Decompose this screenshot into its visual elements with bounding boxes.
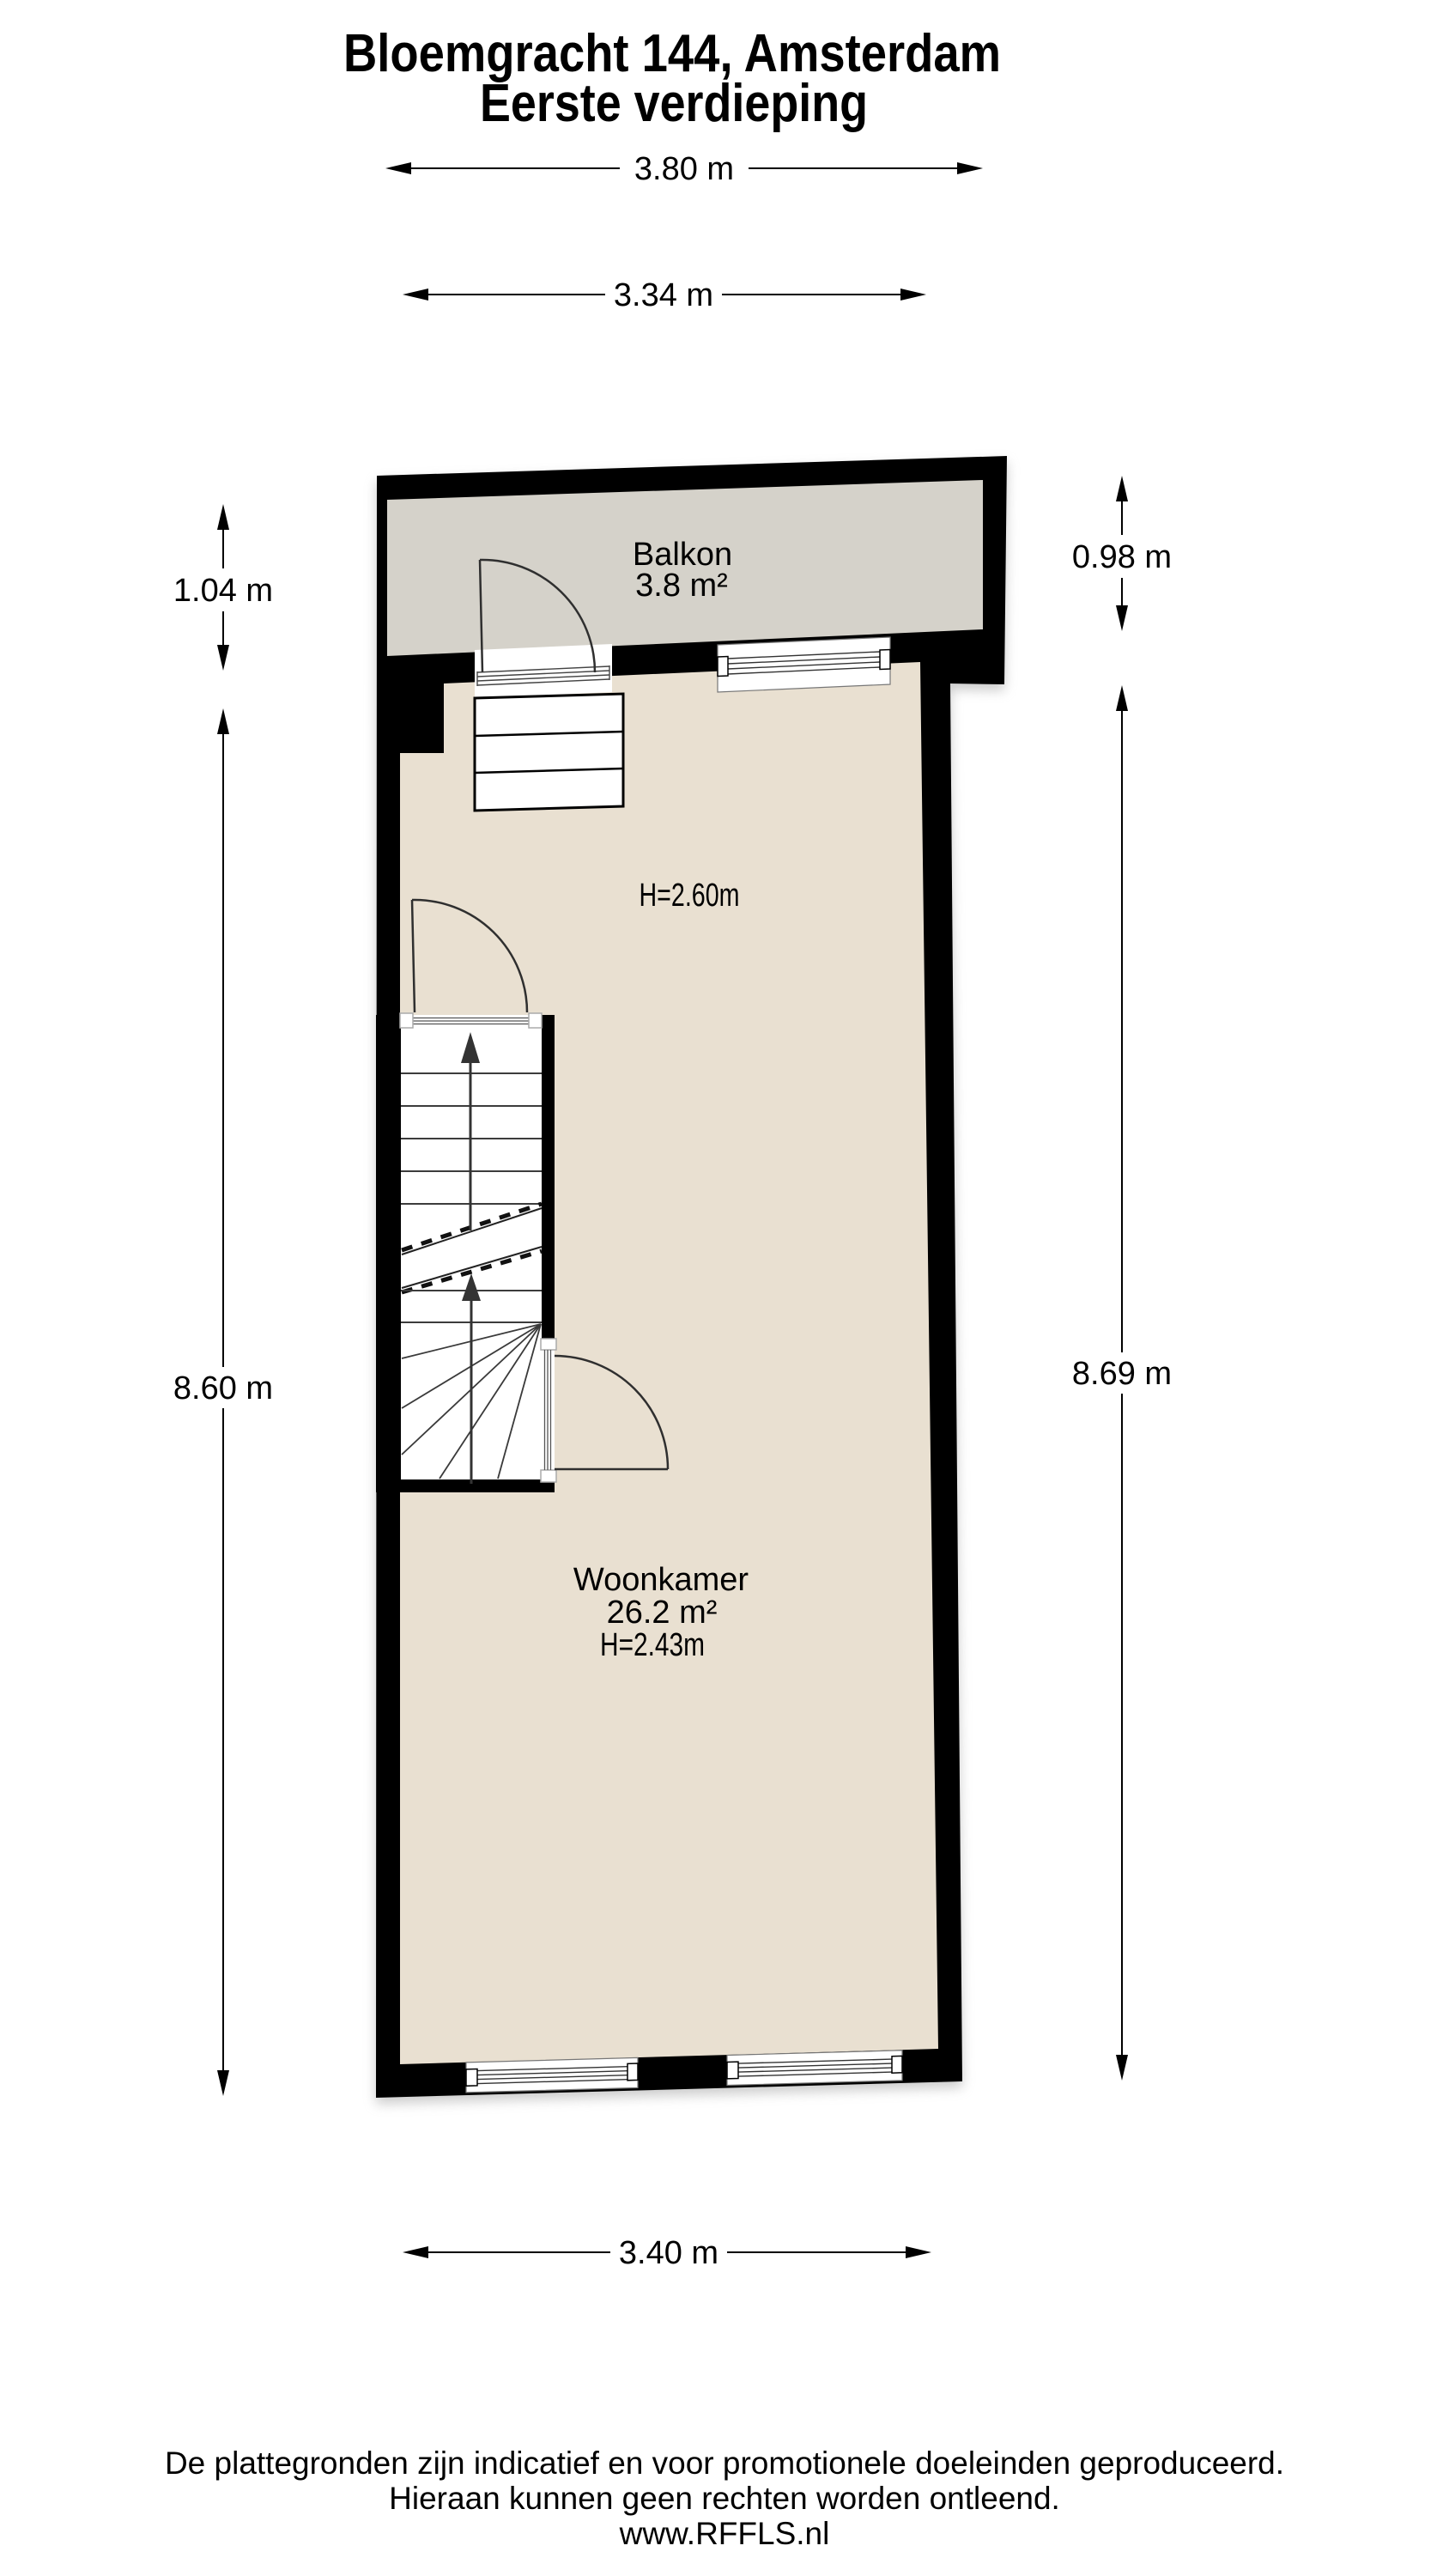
svg-text:8.69 m: 8.69 m — [1072, 1356, 1172, 1392]
svg-text:Woonkamer: Woonkamer — [573, 1562, 749, 1598]
svg-text:H=2.60m: H=2.60m — [640, 878, 740, 914]
svg-text:Eerste verdieping: Eerste verdieping — [480, 74, 868, 133]
svg-text:0.98 m: 0.98 m — [1072, 539, 1172, 575]
svg-text:H=2.43m: H=2.43m — [600, 1627, 705, 1663]
svg-text:8.60 m: 8.60 m — [173, 1370, 273, 1406]
svg-text:3.80 m: 3.80 m — [634, 151, 734, 187]
svg-text:26.2 m²: 26.2 m² — [607, 1595, 718, 1631]
svg-text:3.34 m: 3.34 m — [614, 277, 713, 313]
svg-text:1.04 m: 1.04 m — [173, 573, 273, 609]
svg-text:3.8 m²: 3.8 m² — [635, 568, 728, 604]
svg-text:3.40 m: 3.40 m — [619, 2235, 718, 2271]
